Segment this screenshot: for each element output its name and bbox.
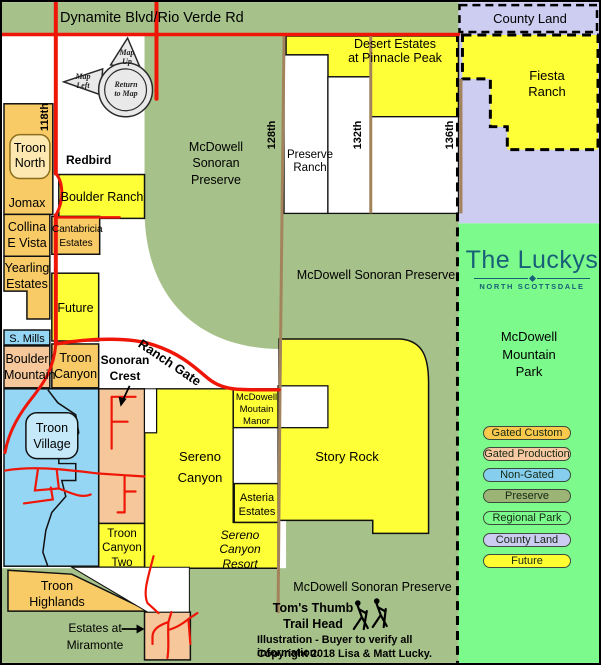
future-label: Future xyxy=(52,301,99,317)
jomax-label: Jomax xyxy=(4,196,50,212)
collina-e-vista-label: Collina E Vista xyxy=(4,219,50,252)
unlabeled-area-2 xyxy=(328,77,371,214)
mcdowell-moutain-manor-label: McDowell Moutain Manor xyxy=(234,392,279,428)
desert-estates-label: Desert Estates at Pinnacle Peak xyxy=(330,37,460,66)
story-rock-parcel[interactable] xyxy=(279,339,428,533)
estates-at-miramonte-label: Estates at Miramonte xyxy=(58,620,132,654)
unlabeled-area-6 xyxy=(145,389,157,433)
map-left-label[interactable]: Map Left xyxy=(68,73,98,91)
county-land-label: County Land xyxy=(460,11,600,27)
road-label-redbird: Redbird xyxy=(66,153,126,168)
brand-ornament xyxy=(474,276,590,281)
asteria-estates-label: Asteria Estates xyxy=(235,491,279,520)
troon-canyon-two-label: Troon Canyon Two xyxy=(99,527,145,570)
preserve-ranch-label: Preserve Ranch xyxy=(285,149,335,175)
sereno-canyon-label: Sereno Canyon xyxy=(158,446,242,489)
road-label-128th: 128th xyxy=(266,121,278,150)
map-up-label[interactable]: Map Up xyxy=(110,49,144,67)
road-label-118th: 118th xyxy=(39,103,51,131)
legend-gated-production: Gated Production xyxy=(483,447,571,461)
brand-subtitle: NORTH SCOTTSDALE xyxy=(464,282,600,291)
mcdowell-sonoran-preserve-label-mid: McDowell Sonoran Preserve xyxy=(295,268,457,284)
yearling-estates-label: Yearling Estates xyxy=(4,260,50,293)
legend-county-land: County Land xyxy=(483,533,571,547)
legend-regional-park: Regional Park xyxy=(483,511,571,525)
legend-preserve: Preserve xyxy=(483,489,571,503)
brand-name: The Luckys xyxy=(464,248,600,273)
road-label-136th: 136th xyxy=(444,121,456,150)
dynamite-road-label: Dynamite Blvd/Rio Verde Rd xyxy=(60,9,320,27)
cantabricia-estates-label: Cantabricia Estates xyxy=(52,223,100,250)
mcdowell-sonoran-preserve-label-top: McDowell Sonoran Preserve xyxy=(170,139,262,188)
boulder-mountain-label: Boulder Mountain xyxy=(4,351,50,384)
troon-canyon-label: Troon Canyon xyxy=(52,350,99,383)
legend-non-gated: Non-Gated xyxy=(483,468,571,482)
mcdowell-sonoran-preserve-label-bottom: McDowell Sonoran Preserve xyxy=(290,580,455,596)
unlabeled-area-1 xyxy=(284,55,328,213)
sonoran-crest-label: Sonoran Crest xyxy=(96,353,154,384)
unlabeled-area-4 xyxy=(278,386,328,428)
troon-north-label: Troon North xyxy=(10,141,50,171)
the-luckys-branding: The Luckys NORTH SCOTTSDALE xyxy=(464,248,600,291)
road-label-132th: 132th xyxy=(352,121,364,150)
fiesta-ranch-label: Fiesta Ranch xyxy=(505,68,589,99)
sereno-canyon-resort-label: Sereno Canyon Resort xyxy=(204,528,276,571)
copyright-text: Copyright 2018 Lisa & Matt Lucky. xyxy=(257,648,467,661)
sonoran-crest-parcel[interactable] xyxy=(99,389,145,524)
boulder-ranch-label: Boulder Ranch xyxy=(59,190,145,206)
legend-gated-custom: Gated Custom xyxy=(483,426,571,440)
legend-future: Future xyxy=(483,554,571,568)
s-mills-label: S. Mills xyxy=(4,333,50,347)
return-to-map-label[interactable]: Return to Map xyxy=(104,81,148,99)
community-map: Dynamite Blvd/Rio Verde Rd County Land D… xyxy=(0,0,601,665)
troon-village-label: Troon Village xyxy=(26,420,78,453)
preserve-area-top xyxy=(145,35,292,349)
story-rock-label: Story Rock xyxy=(300,449,394,465)
troon-highlands-label: Troon Highlands xyxy=(10,578,104,611)
mcdowell-mountain-park-label: McDowell Mountain Park xyxy=(479,328,579,381)
toms-thumb-label: Tom's Thumb Trail Head xyxy=(268,601,358,632)
